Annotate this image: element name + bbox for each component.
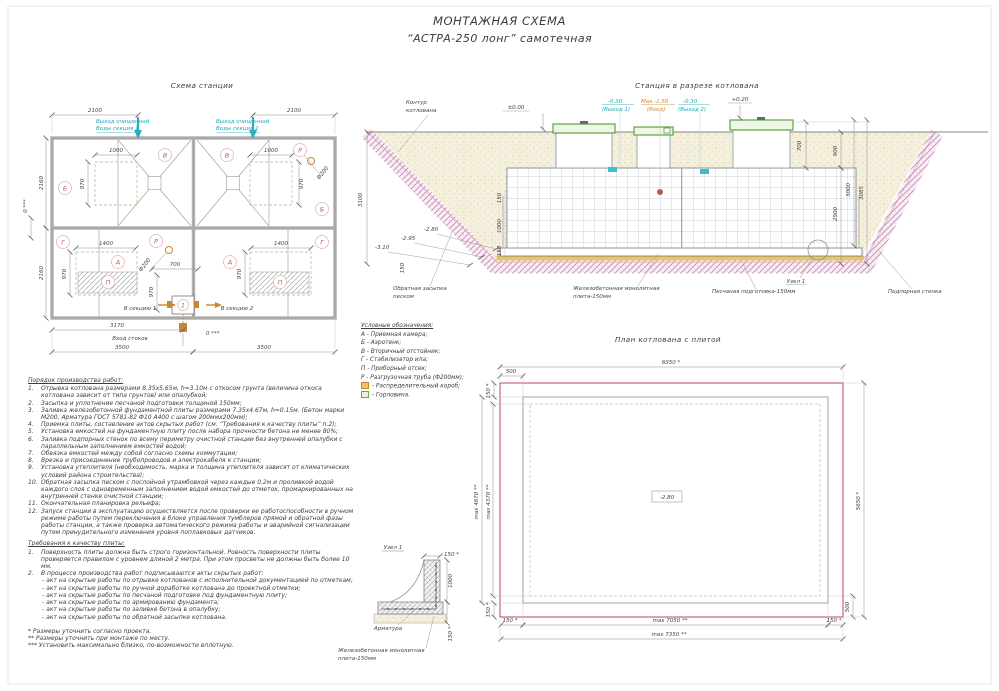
letter-B-right: Б [320, 207, 324, 214]
notes-column: Порядок производства работ: 1.Отрывка ко… [28, 377, 356, 649]
dim-150-a: 150 [497, 192, 503, 203]
node-sand-layer [374, 614, 446, 623]
dim-3000: 3000 [846, 183, 852, 197]
dim-max4670: max 4670 ** [474, 484, 480, 519]
elev-0.20: +0.20 [732, 97, 749, 103]
procedure-item: 3.Заливка железобетонной фундаментной пл… [28, 407, 356, 421]
dim-150-left: 150 [400, 262, 406, 273]
legend-block: Условные обозначения: А - Приемная камер… [361, 322, 511, 400]
outlet2-pipe-marker [700, 169, 709, 174]
to-section2-label: В секцию 2 [221, 306, 254, 312]
dim-phi200-top: Ф200 [316, 165, 330, 181]
drawing-sheet: Схема станции [0, 0, 999, 691]
footnote: *** Установить максимально близко, по-во… [28, 642, 356, 649]
tank-shell-curve [390, 560, 424, 602]
neck-swatch [361, 391, 369, 398]
letter-G-right: Г [320, 240, 324, 247]
legend-item: Р - Разгрузочная труба (Ф200мм); [361, 374, 511, 383]
dim-2100-left: 2100 [88, 108, 102, 114]
legend-item: В - Вторичный отстойник; [361, 348, 511, 357]
dim-1400-left: 1400 [99, 241, 113, 247]
dim-970-bl: 970 [62, 268, 68, 279]
dim-1000-wall: 1000 [497, 219, 503, 233]
letter-P-right: П [278, 280, 283, 287]
inlet-label: Вход стоков [112, 336, 147, 342]
title-line1: МОНТАЖНАЯ СХЕМА [0, 14, 999, 28]
pit-plan-drawing: План котлована с плитой -2.80 [474, 335, 867, 641]
elev-out2-1: -0.30 [683, 99, 698, 105]
acts-list: - акт на скрытые работы по отрывке котло… [28, 577, 356, 620]
inlet-marker [179, 323, 187, 332]
dim-150-b: 150 [497, 245, 503, 256]
dim-700-section: 700 [797, 140, 803, 151]
slab-label-1: Железобетонная монолитная [572, 286, 660, 292]
backfill-label-2: песком [393, 294, 414, 300]
letter-R-top: Р [298, 148, 302, 155]
dim-5650: 5650 * [856, 492, 862, 511]
footnote: ** Размеры уточнить при монтаже по месту… [28, 635, 356, 642]
dim-970-tr: 970 [299, 178, 305, 189]
procedure-item: 12.Запуск станции в эксплуатацию осущест… [28, 508, 356, 537]
legend-item-neck: - Горловина. [361, 391, 511, 400]
dim-2100-right: 2100 [287, 108, 301, 114]
elev-2.95: -2.95 [401, 236, 416, 242]
slab-label-2: плита-150мм [573, 294, 611, 300]
legend-heading: Условные обозначения: [361, 322, 511, 331]
outlet1-pipe-marker [608, 167, 617, 172]
pit-plan-title: План котлована с плитой [615, 335, 721, 344]
elev-inlet-2: (Вход) [647, 107, 666, 113]
dim-970-center: 970 [149, 286, 155, 297]
dim-2900: 2900 [833, 207, 839, 221]
dim-1000-left: 1000 [109, 148, 123, 154]
contour-label-1: Контур [406, 100, 427, 106]
outlet1-label-2: Воды секция 1 [96, 126, 139, 132]
station-plan-drawing: Схема станции [23, 81, 335, 356]
legend-item-distribution-box: - Распределительный короб; [361, 382, 511, 391]
dim-max4370: max 4370 ** [486, 484, 492, 519]
backfill-label-1: Обратная засыпка [393, 286, 447, 292]
dim-max7350: max 7350 ** [652, 632, 687, 638]
to-section1-label: В секцию 1 [124, 306, 156, 312]
elev-out2-2: (Выход 2) [678, 107, 706, 113]
letter-G-left: Г [61, 240, 65, 247]
dim-phi200-bottom: Ф200 [138, 257, 152, 273]
retaining-wall-label: Подпорная стенка [888, 289, 942, 295]
requirement-item: 1.Поверхность плиты должна быть строго г… [28, 549, 356, 571]
dim-970-br: 970 [237, 268, 243, 279]
title-line2: “АСТРА-250 лонг” самотечная [0, 32, 999, 45]
dim-700: 700 [170, 262, 181, 268]
legend-item: П - Приборный отсек; [361, 365, 511, 374]
elev-0.00: ±0.00 [508, 105, 525, 111]
outlet1-label-1: Выход очищенной [96, 119, 150, 125]
footnote: * Размеры уточнить согласно проекта. [28, 628, 356, 635]
rebar-label: Арматура [373, 626, 403, 632]
node1-ref-label: Узел 1 [787, 279, 805, 285]
dim-3500-left: 3500 [115, 345, 129, 351]
dim-max7050: max 7050 ** [653, 618, 688, 624]
hatch-zone-right-top [250, 162, 292, 205]
node-wall [424, 560, 440, 602]
node-dim-150-right: 150 * [448, 626, 454, 641]
procedure-item: 8.Врезка и присоединение трубопроводов и… [28, 457, 356, 464]
dim-150-bl: 150 * [486, 602, 492, 617]
label-box-1: 1 [181, 303, 185, 310]
node-dim-150-top: 150 * [444, 552, 459, 558]
pit-depth-label: -2.80 [660, 495, 675, 501]
dim-3100: 3100 [358, 193, 364, 207]
letter-P-left: П [106, 280, 111, 287]
legend-item: А - Приемная камера; [361, 331, 511, 340]
outlet2-label-1: Выход очищенной [216, 119, 270, 125]
procedure-item: 11.Окончательная планировка рельефа; [28, 500, 356, 507]
sheet-title: МОНТАЖНАЯ СХЕМА “АСТРА-250 лонг” самотеч… [0, 14, 999, 45]
letter-A-left: А [115, 260, 120, 267]
node-slab [378, 602, 443, 614]
station-plan-title: Схема станции [171, 81, 233, 90]
node-slab-label-2: плита-150мм [338, 656, 376, 662]
dim-150-b1: 150 * [503, 618, 518, 624]
elev-out1-2: (Выход 1) [602, 107, 630, 113]
elev-out1-1: -0.30 [608, 99, 623, 105]
legend-item: Б - Аэротенк; [361, 339, 511, 348]
dim-1400-right: 1400 [274, 241, 288, 247]
pit-plan-dims [479, 364, 867, 641]
letter-A-right: А [227, 260, 232, 267]
procedure-item: 5.Установка емкостей на фундаментную пли… [28, 428, 356, 435]
procedure-item: 10.Обратная засыпка песком с послойной у… [28, 479, 356, 501]
procedure-item: 9.Установка утеплителя (необходимость, м… [28, 464, 356, 478]
dim-1000-right: 1000 [264, 148, 278, 154]
legend-item: Г - Стабилизатор ила; [361, 356, 511, 365]
act-item: - акт на скрытые работы по ручной дорабо… [42, 585, 356, 592]
dim-3500-right: 3500 [257, 345, 271, 351]
dim-2160-top: 2160 [39, 176, 45, 190]
dim-2160-bottom: 2160 [39, 266, 45, 280]
sandprep-label: Песчаная подготовка-150мм [712, 289, 796, 295]
letter-V-right: В [225, 153, 229, 160]
dim-3170: 3170 [110, 323, 124, 329]
dim-150-b2: 150 * [827, 618, 842, 624]
dim-0-left: 0 *** [23, 199, 29, 213]
node-dim-1000: 1000 [448, 574, 454, 588]
node1-title: Узел 1 [384, 545, 402, 551]
procedure-item: 2.Засыпка и уплотнение песчаной подготов… [28, 400, 356, 407]
elev-2.80: -2.80 [424, 227, 439, 233]
procedure-heading: Порядок производства работ: [28, 377, 356, 384]
act-item: - акт на скрытые работы по армированию ф… [42, 599, 356, 606]
dim-3085: 3085 [859, 186, 865, 200]
act-item: - акт на скрытые работы по заливке бетон… [42, 606, 356, 613]
procedure-item: 6.Заливка подпорных стенок по всему пери… [28, 436, 356, 450]
procedure-item: 4.Приемка плиты, составление актов скрыт… [28, 421, 356, 428]
letter-R-bottom: Р [154, 239, 158, 246]
procedure-item: 1.Отрывка котлована размерами 8.35х5.65м… [28, 385, 356, 399]
cross-section-title: Станция в разрезе котлована [635, 81, 759, 90]
requirements-heading: Требования к качеству плиты: [28, 540, 356, 547]
outlet2-label-2: Воды секция 2 [216, 126, 259, 132]
contour-label-2: котлована [406, 108, 437, 114]
inlet-pipe-marker [657, 189, 663, 195]
requirement-item: 2.В процессе производства работ подписыв… [28, 570, 356, 577]
cross-section-drawing: Станция в разрезе котлована [358, 81, 988, 300]
plan-dimension-lines [31, 115, 335, 356]
dim-0-bottom: 0 *** [206, 331, 220, 337]
elev-inlet-1: Мах.-1.50 [641, 99, 669, 105]
dim-8350: 8350 * [662, 360, 681, 366]
dim-900: 900 [833, 145, 839, 156]
elev-3.10: -3.10 [375, 245, 390, 251]
act-item: - акт на скрытые работы по обратной засы… [42, 614, 356, 621]
distribution-box-swatch [361, 382, 369, 389]
letter-V-left: В [163, 153, 167, 160]
dim-970-tl: 970 [80, 178, 86, 189]
letter-B-left: Б [63, 186, 67, 193]
procedure-item: 7.Обвязка емкостей между собой согласно … [28, 450, 356, 457]
act-item: - акт на скрытые работы по песчаной подг… [42, 592, 356, 599]
hatch-zone-left-top [95, 162, 137, 205]
dim-500-right: 500 [845, 601, 851, 612]
act-item: - акт на скрытые работы по отрывке котло… [42, 577, 356, 584]
